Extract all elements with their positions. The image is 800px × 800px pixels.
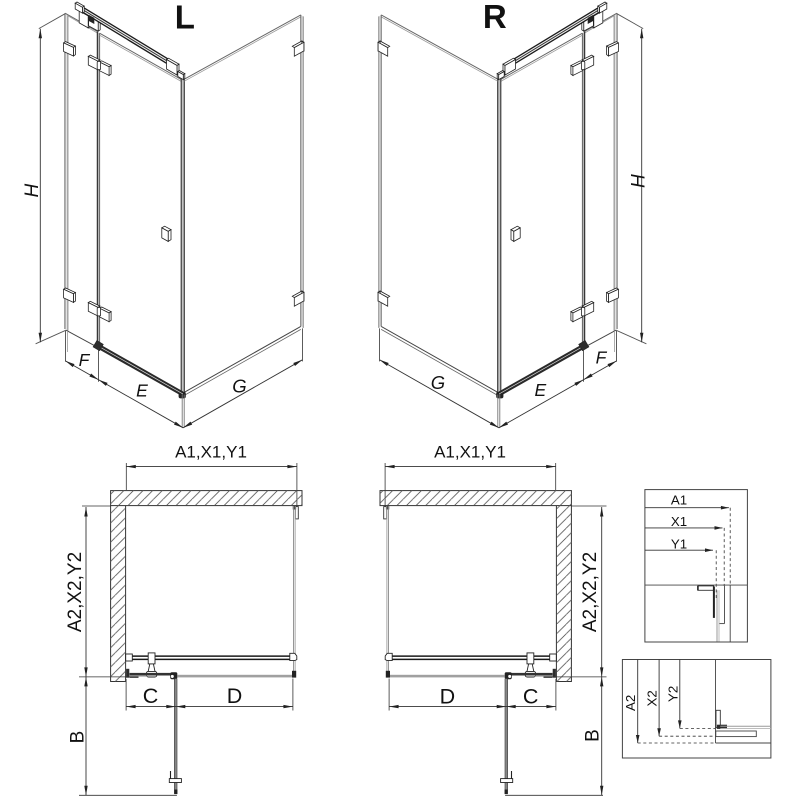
- svg-text:A2: A2: [623, 695, 638, 711]
- svg-text:X2: X2: [644, 690, 659, 706]
- svg-text:H: H: [628, 174, 649, 188]
- svg-text:A1,X1,Y1: A1,X1,Y1: [434, 443, 506, 462]
- svg-text:X1: X1: [671, 514, 687, 529]
- svg-text:D: D: [440, 685, 456, 709]
- svg-text:B: B: [67, 731, 88, 744]
- svg-text:C: C: [143, 684, 159, 708]
- svg-text:H: H: [22, 183, 43, 197]
- svg-text:L: L: [175, 0, 195, 36]
- svg-text:F: F: [596, 348, 608, 368]
- svg-text:F: F: [79, 350, 91, 370]
- svg-text:E: E: [535, 380, 547, 400]
- svg-text:Y1: Y1: [671, 536, 687, 551]
- svg-text:A2,X2,Y2: A2,X2,Y2: [580, 552, 601, 632]
- svg-text:G: G: [232, 375, 246, 396]
- svg-text:Y2: Y2: [665, 686, 680, 702]
- svg-text:A1: A1: [671, 493, 687, 508]
- svg-text:A1,X1,Y1: A1,X1,Y1: [175, 443, 247, 462]
- svg-text:G: G: [431, 372, 445, 393]
- svg-text:B: B: [583, 729, 604, 742]
- svg-text:C: C: [523, 685, 539, 709]
- svg-text:E: E: [136, 381, 148, 401]
- svg-text:R: R: [483, 0, 507, 35]
- svg-text:A2,X2,Y2: A2,X2,Y2: [65, 552, 86, 632]
- svg-text:D: D: [227, 684, 243, 708]
